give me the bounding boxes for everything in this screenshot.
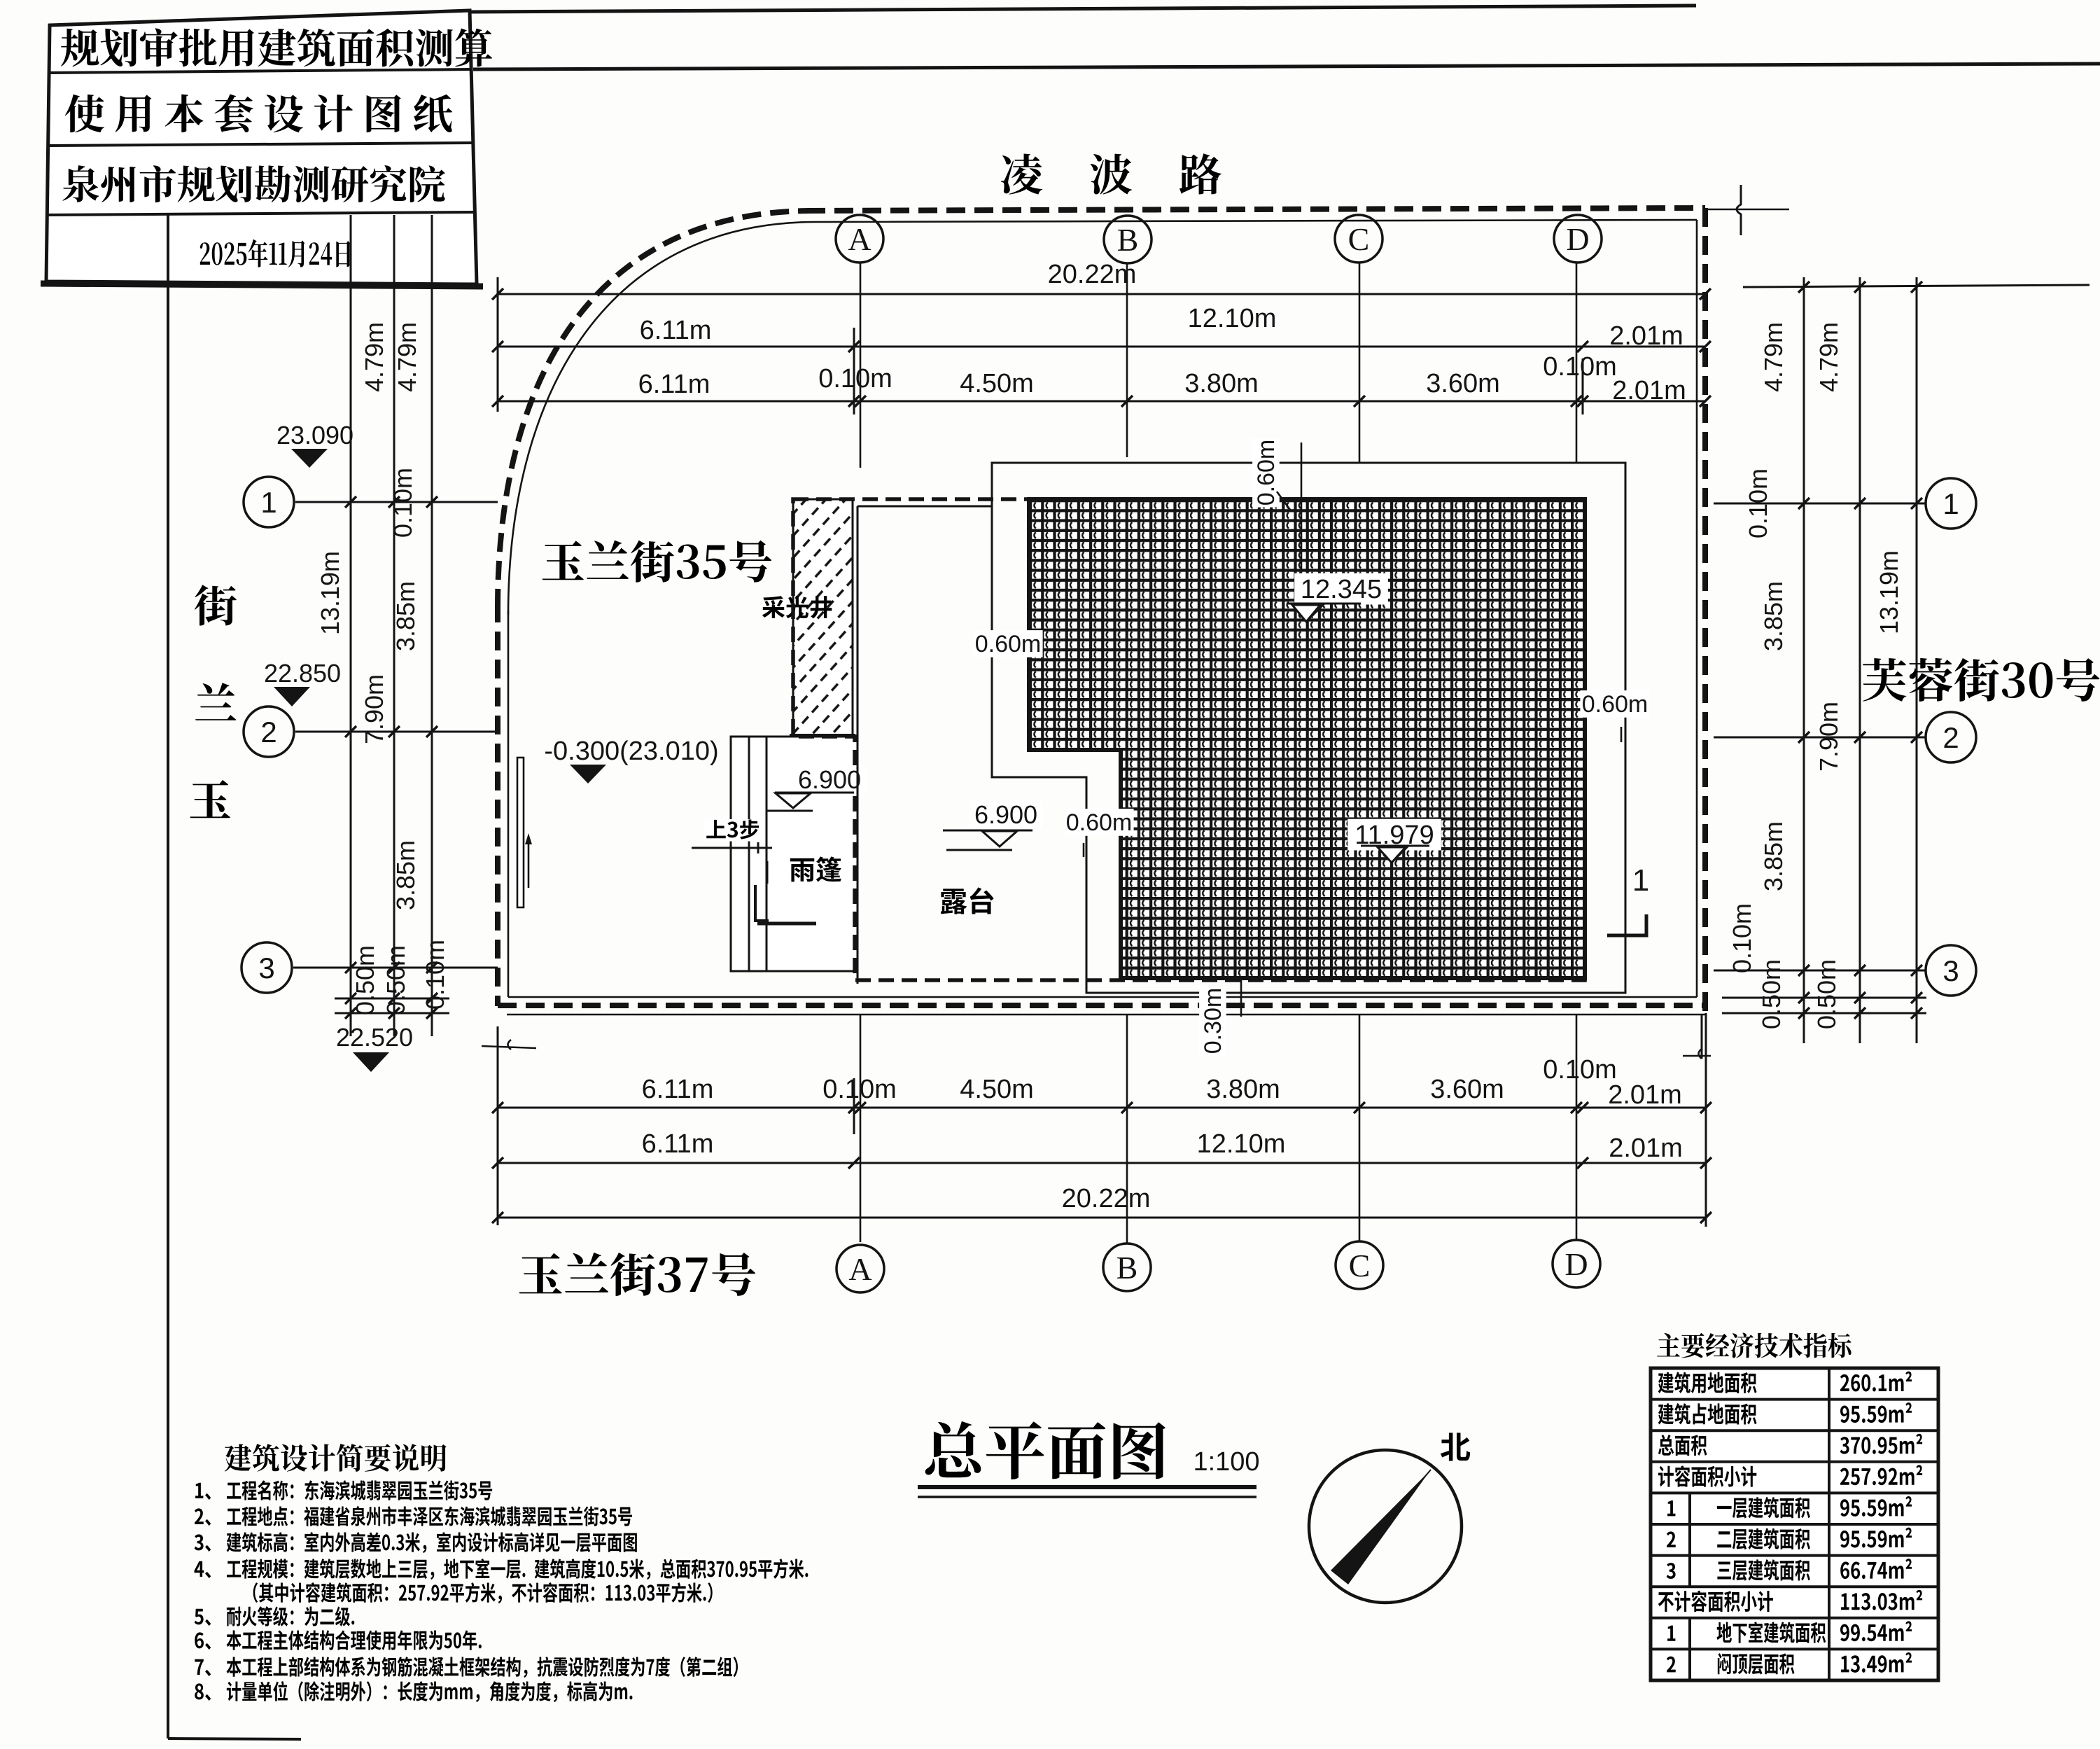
svg-text:6.11m: 6.11m (642, 1129, 714, 1159)
svg-text:3.60m: 3.60m (1426, 369, 1500, 398)
svg-text:0.10m: 0.10m (818, 364, 892, 393)
svg-text:0.10m: 0.10m (1744, 468, 1772, 538)
svg-text:0.10m: 0.10m (1543, 1055, 1617, 1085)
svg-text:D: D (1566, 221, 1589, 257)
svg-text:0.60m: 0.60m (1582, 691, 1648, 718)
svg-text:1: 1 (1942, 487, 1959, 520)
svg-text:1:100: 1:100 (1193, 1447, 1259, 1477)
svg-text:6.900: 6.900 (798, 765, 861, 794)
svg-text:0.50m: 0.50m (351, 945, 379, 1015)
svg-text:22.850: 22.850 (264, 659, 341, 688)
svg-text:0.50m: 0.50m (1812, 959, 1841, 1029)
svg-text:1: 1 (260, 486, 276, 519)
svg-text:1: 1 (1632, 863, 1649, 898)
svg-text:3: 3 (258, 952, 274, 984)
svg-text:0.30m: 0.30m (1200, 988, 1226, 1054)
svg-text:C: C (1348, 221, 1370, 257)
svg-text:2.01m: 2.01m (1608, 1080, 1682, 1110)
svg-text:13.19m: 13.19m (316, 551, 344, 635)
svg-text:C: C (1349, 1248, 1371, 1283)
svg-text:3.80m: 3.80m (1206, 1075, 1280, 1104)
svg-text:D: D (1564, 1246, 1588, 1282)
svg-text:0.60m: 0.60m (1066, 809, 1133, 836)
svg-text:6.11m: 6.11m (640, 316, 712, 345)
svg-text:0.50m: 0.50m (381, 945, 410, 1015)
svg-text:20.22m: 20.22m (1048, 260, 1137, 289)
svg-text:0.60m: 0.60m (1253, 440, 1280, 506)
svg-text:0.10m: 0.10m (421, 940, 449, 1010)
svg-text:4.79m: 4.79m (1814, 322, 1843, 392)
svg-text:4.79m: 4.79m (393, 322, 421, 392)
svg-text:12.10m: 12.10m (1188, 304, 1277, 333)
svg-text:3.85m: 3.85m (1759, 581, 1788, 651)
svg-text:7.90m: 7.90m (360, 674, 388, 744)
svg-text:2.01m: 2.01m (1612, 376, 1686, 405)
svg-text:20.22m: 20.22m (1062, 1184, 1151, 1213)
svg-text:4.50m: 4.50m (960, 1075, 1034, 1104)
svg-text:6.11m: 6.11m (642, 1075, 714, 1104)
svg-text:6.900: 6.900 (974, 800, 1037, 829)
svg-text:2.01m: 2.01m (1609, 321, 1683, 351)
svg-text:3.85m: 3.85m (391, 840, 420, 910)
svg-text:4.79m: 4.79m (1759, 322, 1788, 392)
svg-text:0.10m: 0.10m (388, 468, 417, 538)
svg-text:3.80m: 3.80m (1184, 369, 1259, 398)
svg-text:0.60m: 0.60m (975, 631, 1042, 657)
svg-text:23.090: 23.090 (276, 421, 353, 450)
svg-text:4.50m: 4.50m (960, 369, 1034, 398)
svg-text:7.90m: 7.90m (1814, 702, 1843, 772)
svg-text:3.85m: 3.85m (1759, 821, 1788, 891)
svg-text:12.10m: 12.10m (1197, 1129, 1286, 1159)
svg-text:22.520: 22.520 (336, 1023, 413, 1052)
svg-text:0.10m: 0.10m (1728, 903, 1756, 973)
svg-text:13.19m: 13.19m (1875, 550, 1903, 634)
svg-text:6.11m: 6.11m (638, 370, 710, 399)
svg-text:2: 2 (1942, 721, 1959, 754)
svg-text:A: A (848, 1251, 871, 1287)
svg-text:2.01m: 2.01m (1609, 1134, 1683, 1163)
svg-text:3.85m: 3.85m (391, 581, 420, 651)
svg-text:2: 2 (260, 716, 276, 748)
svg-text:12.345: 12.345 (1301, 575, 1382, 604)
svg-text:A: A (848, 221, 871, 257)
svg-text:B: B (1116, 1250, 1138, 1285)
svg-text:0.50m: 0.50m (1757, 959, 1786, 1029)
svg-text:-0.300(23.010): -0.300(23.010) (544, 737, 718, 766)
svg-text:4.79m: 4.79m (360, 322, 388, 392)
svg-text:0.10m: 0.10m (1543, 352, 1617, 382)
svg-text:3.60m: 3.60m (1430, 1075, 1504, 1104)
svg-text:B: B (1117, 222, 1139, 258)
svg-text:3: 3 (1942, 954, 1959, 987)
